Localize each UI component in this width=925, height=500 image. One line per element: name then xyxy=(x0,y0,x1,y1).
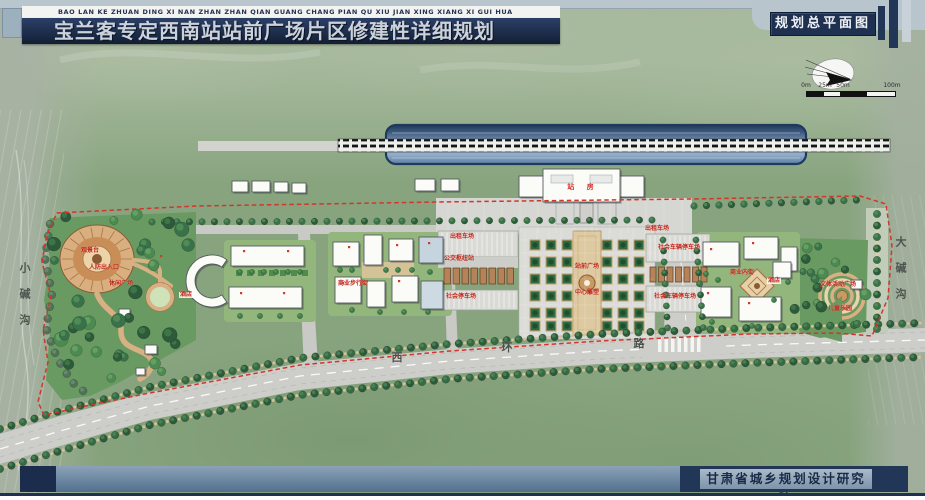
footer-margin xyxy=(0,496,925,500)
institute-name-badge: 甘肃省城乡规划设计研究院 xyxy=(700,469,872,489)
scale-segment xyxy=(840,91,868,97)
scale-tick: 0m xyxy=(801,82,811,89)
plan-sheet: 观景台 人防出入口 休闲广场 酒店 商业步行街 出租车场 公交枢纽站 社会停车场… xyxy=(0,0,925,500)
railway xyxy=(198,125,890,164)
drawing-title-badge: 规划总平面图 xyxy=(770,12,876,36)
map-label: 公交枢纽站 xyxy=(444,256,474,262)
valley-label-left: 小碱沟 xyxy=(16,262,32,340)
scale-bar: 0m 25m 50m 100m xyxy=(800,82,912,100)
map-label: 站前广场 xyxy=(575,264,599,270)
map-label: 观景台 xyxy=(81,248,99,254)
scale-tick: 25m xyxy=(818,82,831,89)
map-label: 出租车场 xyxy=(645,226,669,232)
road-name-char: 西 xyxy=(392,349,403,365)
road-name-char: 环 xyxy=(502,339,513,355)
site-plan-canvas xyxy=(0,0,925,500)
map-label: 社会停车场 xyxy=(446,294,476,300)
page-title: 宝兰客专定西南站站前广场片区修建性详细规划 xyxy=(22,18,560,44)
map-label: 中心雕塑 xyxy=(575,290,599,296)
map-label: 商业步行街 xyxy=(338,281,368,287)
header-bar-decoration xyxy=(878,6,885,40)
header-bar-decoration xyxy=(889,0,898,48)
map-label: 商业内街 xyxy=(730,270,754,276)
map-label: 人防出入口 xyxy=(89,265,119,271)
valley-label-right: 大碱沟 xyxy=(892,236,908,314)
map-label: 出租车场 xyxy=(450,234,474,240)
scale-segment xyxy=(866,91,896,97)
title-pinyin: BAO LAN KE ZHUAN DING XI NAN ZHAN ZHAN Q… xyxy=(22,6,560,18)
map-label: 酒店 xyxy=(179,292,193,298)
scale-tick: 100m xyxy=(883,82,900,89)
road-name-char: 路 xyxy=(634,335,645,351)
corner-tab xyxy=(2,8,22,38)
map-label: 酒店 xyxy=(767,278,781,284)
map-label: 休闲广场 xyxy=(109,281,133,287)
footer-bar xyxy=(56,466,680,492)
footer-accent-square xyxy=(20,466,56,492)
header-bar-decoration xyxy=(902,0,911,42)
station-label: 站 房 xyxy=(567,182,598,192)
map-label: 文体活动广场 xyxy=(820,282,856,288)
scale-tick: 50m xyxy=(836,82,849,89)
map-label: 社会车辆停车场 xyxy=(658,245,700,251)
map-label: 社会车辆停车场 xyxy=(654,294,696,300)
map-label: 儿童乐园 xyxy=(828,306,852,312)
